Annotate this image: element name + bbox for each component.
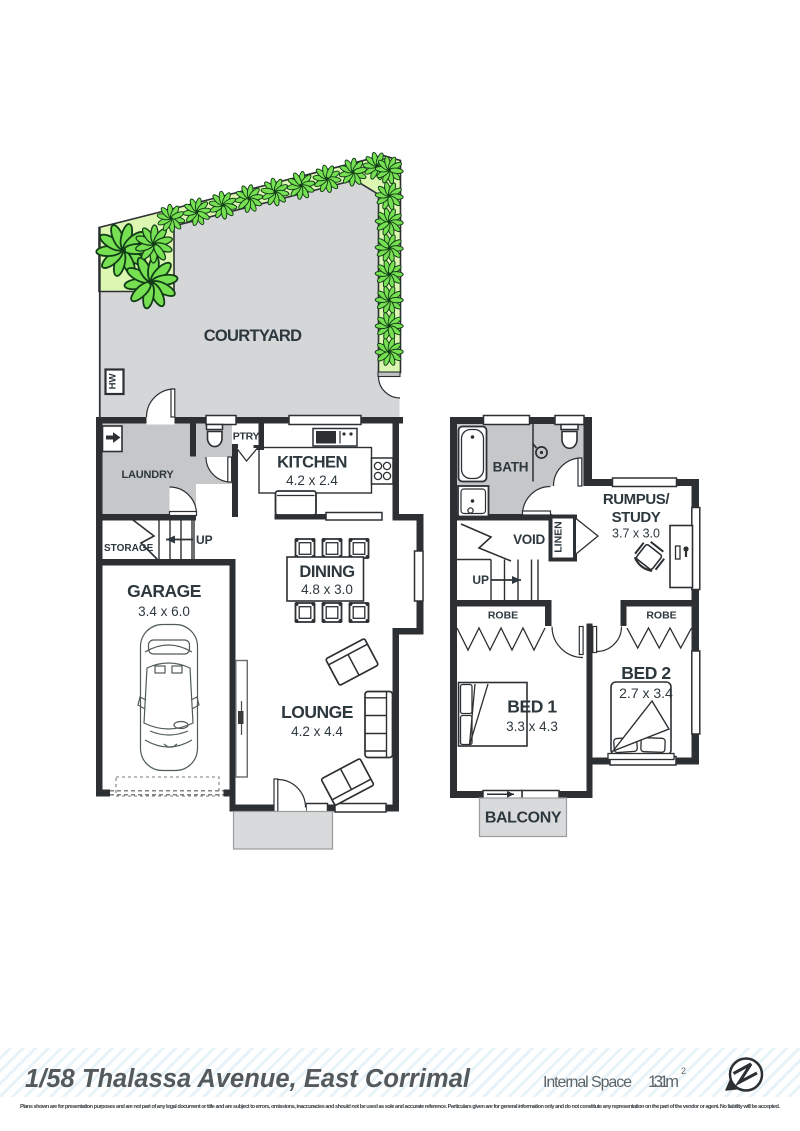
svg-text:3.4 x 6.0: 3.4 x 6.0 bbox=[138, 604, 190, 619]
svg-text:STORAGE: STORAGE bbox=[104, 543, 154, 554]
svg-text:ROBE: ROBE bbox=[646, 610, 676, 622]
svg-text:BALCONY: BALCONY bbox=[485, 810, 562, 827]
svg-text:2: 2 bbox=[681, 1066, 686, 1076]
svg-text:VOID: VOID bbox=[513, 532, 545, 547]
svg-text:BED 2: BED 2 bbox=[621, 663, 671, 683]
svg-text:BED 1: BED 1 bbox=[507, 697, 557, 717]
svg-text:4.2 x 2.4: 4.2 x 2.4 bbox=[286, 473, 338, 488]
svg-text:Internal Space: Internal Space bbox=[543, 1074, 632, 1091]
svg-text:UP: UP bbox=[472, 573, 489, 587]
svg-text:GARAGE: GARAGE bbox=[127, 581, 201, 601]
svg-text:131m: 131m bbox=[648, 1073, 679, 1091]
svg-text:LAUNDRY: LAUNDRY bbox=[122, 469, 175, 481]
svg-text:4.2 x 4.4: 4.2 x 4.4 bbox=[291, 724, 343, 739]
svg-text:COURTYARD: COURTYARD bbox=[204, 327, 302, 345]
svg-text:4.8 x 3.0: 4.8 x 3.0 bbox=[301, 582, 353, 597]
svg-text:LINEN: LINEN bbox=[553, 521, 565, 553]
svg-text:3.7 x 3.0: 3.7 x 3.0 bbox=[612, 527, 660, 541]
svg-text:UP: UP bbox=[196, 533, 213, 547]
svg-text:2.7 x 3.4: 2.7 x 3.4 bbox=[619, 685, 673, 701]
svg-text:3.3 x 4.3: 3.3 x 4.3 bbox=[506, 719, 558, 734]
svg-text:PTRY: PTRY bbox=[233, 431, 260, 443]
svg-text:RUMPUS/: RUMPUS/ bbox=[603, 491, 671, 508]
svg-text:KITCHEN: KITCHEN bbox=[277, 454, 347, 472]
svg-text:HW: HW bbox=[108, 374, 119, 390]
svg-text:BATH: BATH bbox=[493, 460, 529, 475]
svg-text:Plans shown are for presentati: Plans shown are for presentation purpose… bbox=[20, 1104, 780, 1110]
svg-text:LOUNGE: LOUNGE bbox=[281, 702, 353, 722]
svg-text:1/58 Thalassa Avenue, East Cor: 1/58 Thalassa Avenue, East Corrimal bbox=[25, 1065, 471, 1093]
svg-text:ROBE: ROBE bbox=[488, 610, 518, 622]
svg-text:STUDY: STUDY bbox=[612, 509, 661, 526]
svg-text:DINING: DINING bbox=[299, 563, 354, 581]
